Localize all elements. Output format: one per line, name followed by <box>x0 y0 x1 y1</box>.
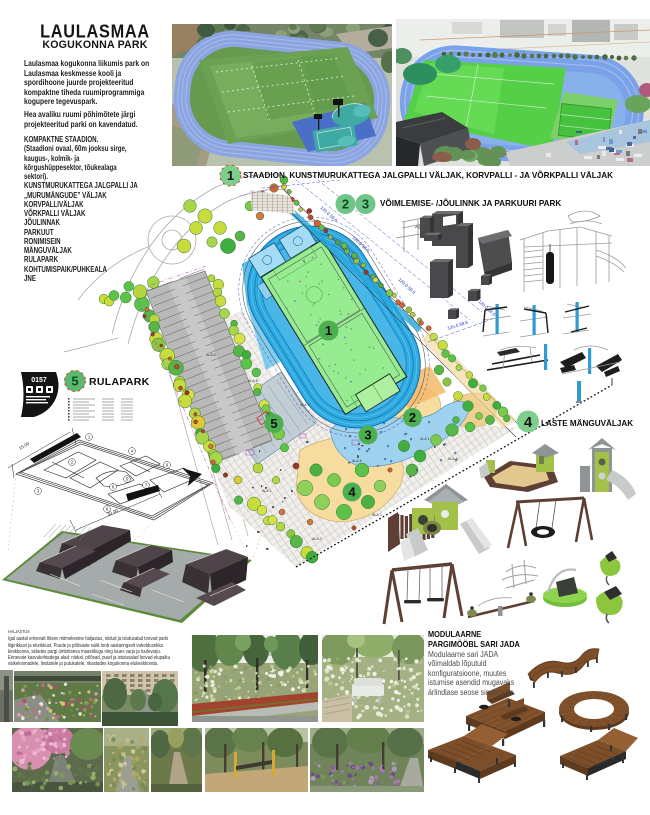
svg-text:1: 1 <box>227 168 234 183</box>
svg-text:1: 1 <box>325 323 332 338</box>
svg-text:0157: 0157 <box>31 377 47 384</box>
svg-text:ALA 3: ALA 3 <box>312 537 322 541</box>
svg-text:5: 5 <box>270 416 277 431</box>
svg-text:4: 4 <box>524 414 533 431</box>
svg-text:ALA 3: ALA 3 <box>372 513 382 517</box>
svg-text:120.0 58.6: 120.0 58.6 <box>397 277 417 295</box>
svg-text:120.0 58.6: 120.0 58.6 <box>319 205 339 223</box>
svg-text:ALA 8: ALA 8 <box>248 379 258 383</box>
svg-text:2: 2 <box>409 410 416 425</box>
svg-text:5: 5 <box>71 374 78 389</box>
svg-text:4: 4 <box>348 485 356 500</box>
svg-text:3: 3 <box>362 197 369 212</box>
svg-text:ALA 1: ALA 1 <box>420 437 430 441</box>
svg-text:ALA 8: ALA 8 <box>448 457 458 461</box>
svg-text:3: 3 <box>364 428 371 443</box>
svg-text:15.00: 15.00 <box>18 441 31 451</box>
svg-text:ALA 1: ALA 1 <box>262 489 272 493</box>
svg-text:ALA 8: ALA 8 <box>352 459 362 463</box>
svg-text:ALA 7: ALA 7 <box>300 403 310 407</box>
svg-text:2: 2 <box>342 197 349 212</box>
svg-text:ALA 6: ALA 6 <box>206 353 216 357</box>
svg-text:120.0 58.6: 120.0 58.6 <box>447 319 469 330</box>
